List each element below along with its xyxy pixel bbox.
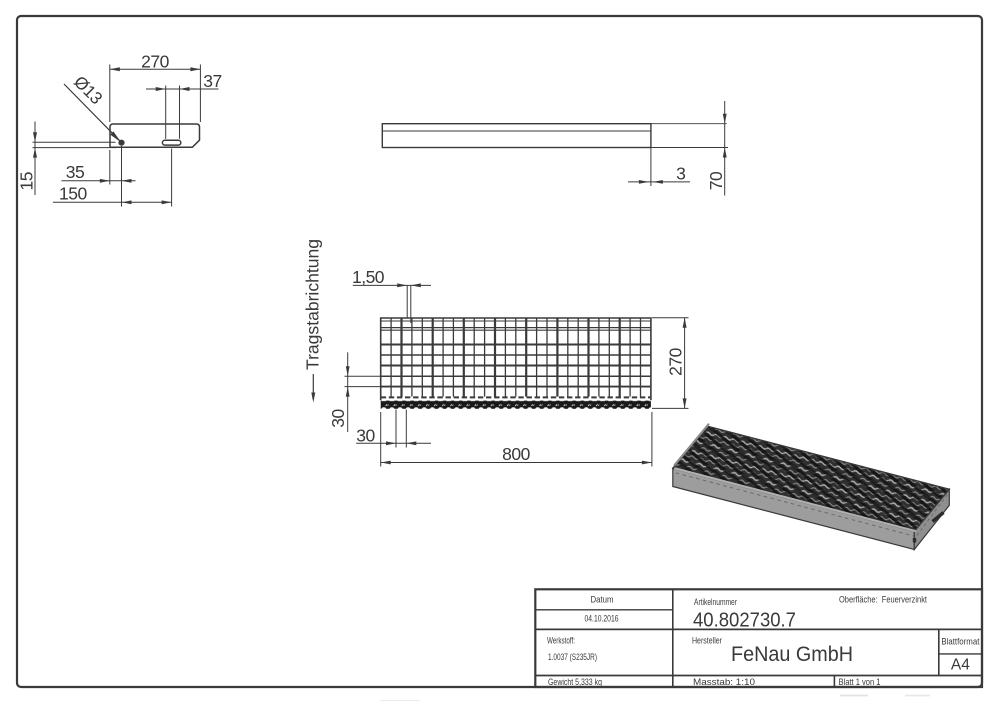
svg-text:FeNau GmbH: FeNau GmbH: [731, 643, 853, 666]
svg-text:1,50: 1,50: [352, 267, 385, 287]
svg-text:Artikelnummer: Artikelnummer: [694, 597, 737, 608]
svg-text:Blattformat: Blattformat: [941, 637, 979, 647]
svg-text:1.0037 (S235JR): 1.0037 (S235JR): [548, 652, 597, 663]
svg-text:3: 3: [676, 164, 686, 184]
svg-text:Tragstabrichtung: Tragstabrichtung: [303, 239, 323, 370]
svg-text:Datum: Datum: [591, 595, 614, 606]
svg-text:30: 30: [356, 426, 375, 446]
svg-text:04.10.2016: 04.10.2016: [585, 614, 619, 625]
svg-text:270: 270: [666, 347, 686, 375]
svg-text:35: 35: [66, 162, 84, 182]
svg-text:270: 270: [141, 51, 169, 71]
svg-text:40.802730.7: 40.802730.7: [693, 609, 796, 632]
svg-text:70: 70: [706, 171, 726, 190]
svg-text:800: 800: [502, 444, 530, 464]
svg-text:Hersteller: Hersteller: [692, 636, 722, 647]
svg-text:A4: A4: [951, 657, 970, 674]
svg-text:Werkstoff:: Werkstoff:: [547, 636, 575, 647]
svg-text:Masstab: 1:10: Masstab: 1:10: [693, 677, 755, 688]
svg-text:37: 37: [203, 71, 221, 91]
svg-text:Ø13: Ø13: [70, 72, 106, 108]
svg-text:15: 15: [16, 172, 36, 190]
svg-text:Blatt 1 von 1: Blatt 1 von 1: [839, 677, 881, 688]
svg-text:150: 150: [59, 183, 87, 203]
svg-text:30: 30: [328, 409, 348, 428]
svg-text:Gewicht 5,333 kg: Gewicht 5,333 kg: [548, 677, 602, 688]
svg-text:Oberfläche: Feuerverzinkt: Oberfläche: Feuerverzinkt: [839, 595, 927, 606]
